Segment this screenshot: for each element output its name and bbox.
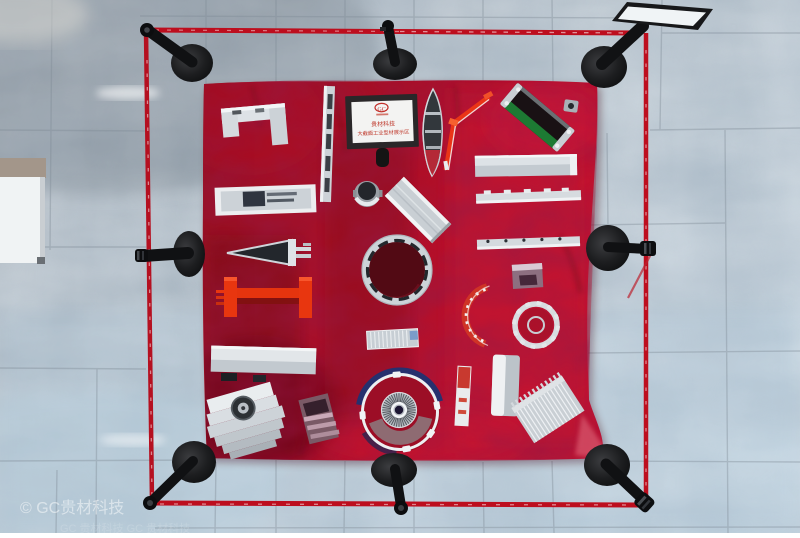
svg-text:© GC贵材科技: © GC贵材科技: [20, 499, 124, 517]
svg-text:GC: GC: [377, 107, 386, 113]
svg-text:GC 贵材科技 GC 贵材科技: GC 贵材科技 GC 贵材科技: [60, 521, 190, 533]
